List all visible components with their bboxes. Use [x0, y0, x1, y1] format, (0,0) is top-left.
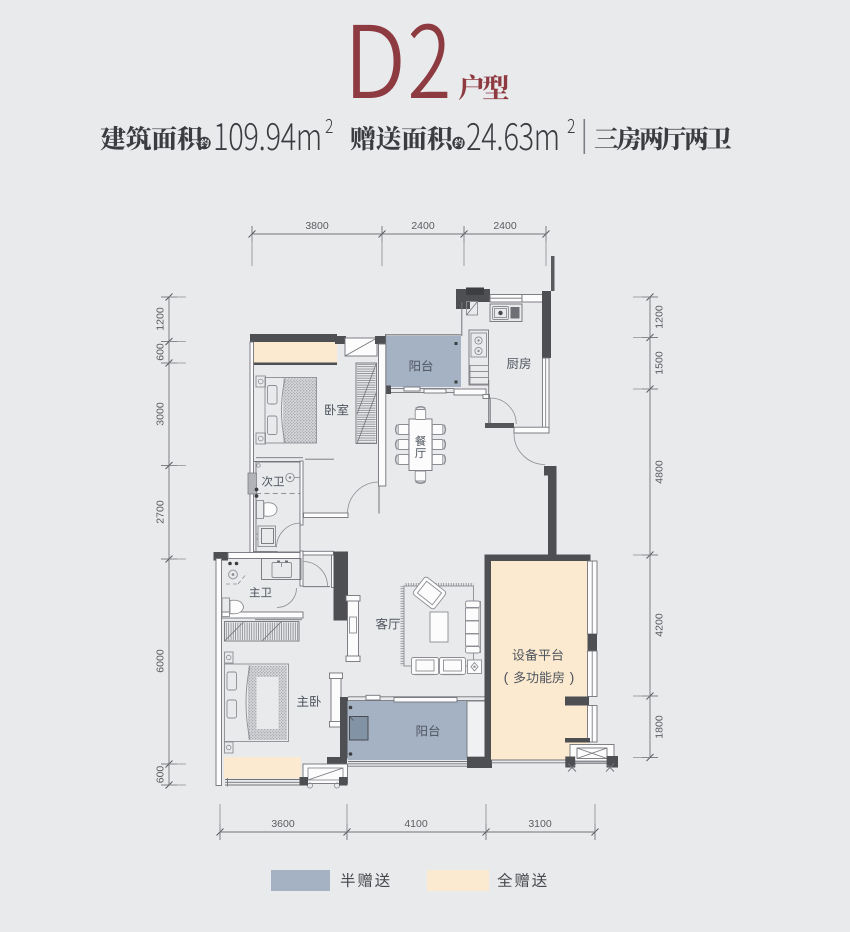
svg-text:1800: 1800 [654, 715, 666, 739]
svg-text:1200: 1200 [654, 305, 666, 329]
svg-text:2400: 2400 [493, 220, 517, 232]
svg-text:2700: 2700 [155, 500, 167, 524]
svg-text:): ) [570, 669, 575, 685]
svg-text:2400: 2400 [411, 220, 435, 232]
svg-text:4100: 4100 [404, 818, 428, 830]
svg-text:3100: 3100 [528, 818, 552, 830]
svg-text:4800: 4800 [654, 460, 666, 484]
svg-text:600: 600 [155, 343, 167, 361]
svg-text:3000: 3000 [155, 402, 167, 426]
svg-text:4200: 4200 [654, 613, 666, 637]
svg-text:1200: 1200 [155, 307, 167, 331]
svg-text:(: ( [504, 669, 509, 685]
svg-text:6000: 6000 [155, 649, 167, 673]
svg-text:3800: 3800 [305, 220, 329, 232]
svg-text:600: 600 [155, 766, 167, 784]
svg-text:1500: 1500 [654, 351, 666, 375]
svg-text:3600: 3600 [271, 818, 295, 830]
